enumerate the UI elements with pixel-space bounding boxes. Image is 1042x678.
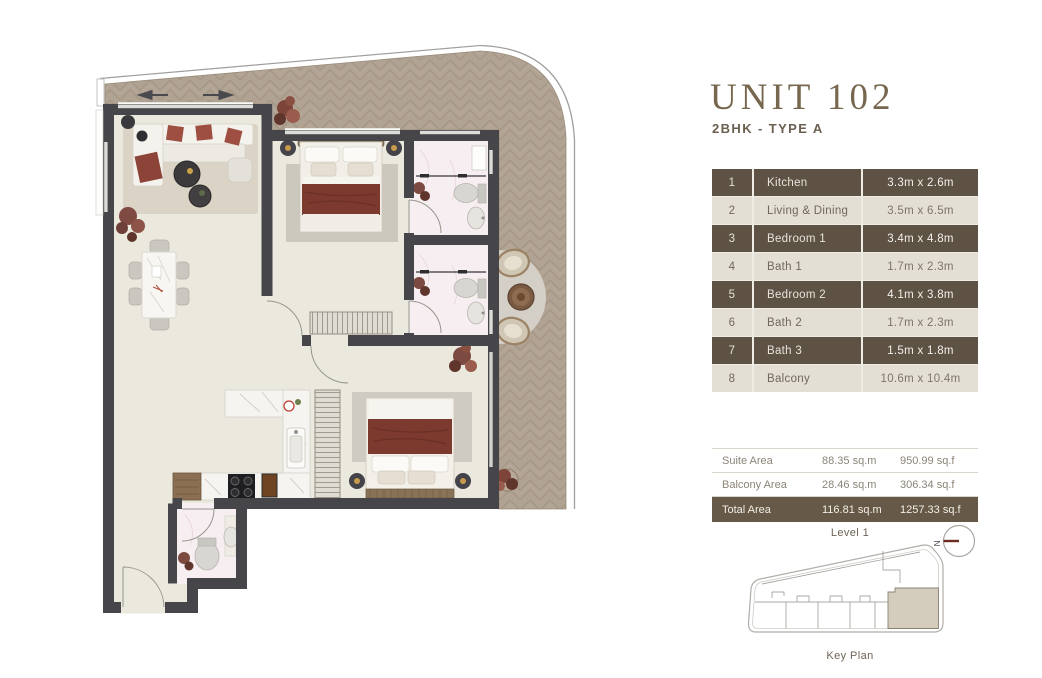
table-row: 4 Bath 1 1.7m x 2.3m xyxy=(712,253,978,280)
room-number: 1 xyxy=(712,169,752,196)
key-plan xyxy=(742,540,958,645)
kitchen-decor-plate xyxy=(284,401,294,411)
table-row: 7 Bath 3 1.5m x 1.8m xyxy=(712,337,978,364)
area-summary-table: Suite Area 88.35 sq.m 950.99 sq.f Balcon… xyxy=(712,448,978,522)
bed-2 xyxy=(366,398,454,498)
room-number: 5 xyxy=(712,281,752,308)
table-row: 1 Kitchen 3.3m x 2.6m xyxy=(712,169,978,196)
table-row-total: Total Area 116.81 sq.m 1257.33 sq.f xyxy=(712,496,978,522)
stove xyxy=(228,474,255,498)
compass-icon: N xyxy=(928,522,980,564)
area-sqf: 1257.33 sq.f xyxy=(900,504,968,516)
kitchen-wood-cabinet xyxy=(173,473,201,500)
room-dimensions-table: 1 Kitchen 3.3m x 2.6m 2 Living & Dining … xyxy=(712,169,978,392)
kitchen-sink xyxy=(287,428,305,468)
bath3-sink xyxy=(224,527,238,547)
room-dimensions: 4.1m x 3.8m xyxy=(863,281,978,308)
room-dimensions: 3.3m x 2.6m xyxy=(863,169,978,196)
side-table xyxy=(228,158,252,182)
room-number: 4 xyxy=(712,253,752,280)
room-name: Bath 1 xyxy=(754,253,861,280)
room-number: 6 xyxy=(712,309,752,336)
area-label: Total Area xyxy=(722,504,822,516)
keyplan-level-label: Level 1 xyxy=(742,527,958,539)
entry-door-gap xyxy=(121,602,165,614)
unit-type-subtitle: 2BHK - TYPE A xyxy=(712,121,824,136)
room-name: Balcony xyxy=(754,365,861,392)
floor-lamp-shade xyxy=(137,131,148,142)
kitchen-decor-herb xyxy=(295,399,301,405)
bath1-shelf xyxy=(472,146,486,170)
table-row: 2 Living & Dining 3.5m x 6.5m xyxy=(712,197,978,224)
area-label: Suite Area xyxy=(722,455,822,467)
balcony-end-post xyxy=(97,79,104,106)
room-number: 3 xyxy=(712,225,752,252)
room-dimensions: 3.5m x 6.5m xyxy=(863,197,978,224)
room-name: Kitchen xyxy=(754,169,861,196)
room-dimensions: 1.7m x 2.3m xyxy=(863,253,978,280)
area-sqm: 116.81 sq.m xyxy=(822,504,900,516)
room-name: Bath 2 xyxy=(754,309,861,336)
room-name: Bedroom 2 xyxy=(754,281,861,308)
room-dimensions: 10.6m x 10.4m xyxy=(863,365,978,392)
floorplan-page: UNIT 102 2BHK - TYPE A 1 Kitchen 3.3m x … xyxy=(0,0,1042,678)
bed-1 xyxy=(298,136,384,232)
toilet xyxy=(454,279,478,298)
floor-plan xyxy=(70,40,580,630)
room-name: Bedroom 1 xyxy=(754,225,861,252)
keyplan-highlighted-unit xyxy=(888,588,939,629)
table-row: Suite Area 88.35 sq.m 950.99 sq.f xyxy=(712,448,978,472)
table-row: 8 Balcony 10.6m x 10.4m xyxy=(712,365,978,392)
bedroom2-wardrobe xyxy=(315,390,340,498)
room-name: Bath 3 xyxy=(754,337,861,364)
room-dimensions: 1.5m x 1.8m xyxy=(863,337,978,364)
room-number: 2 xyxy=(712,197,752,224)
toilet xyxy=(454,184,478,203)
table-row: Balcony Area 28.46 sq.m 306.34 sq.f xyxy=(712,472,978,496)
area-sqf: 306.34 sq.f xyxy=(900,479,968,491)
compass-north-letter: N xyxy=(932,540,942,546)
area-sqf: 950.99 sq.f xyxy=(900,455,968,467)
page-title: UNIT 102 xyxy=(710,76,894,119)
area-sqm: 28.46 sq.m xyxy=(822,479,900,491)
kitchen-decor-tray xyxy=(262,474,277,497)
table-row: 6 Bath 2 1.7m x 2.3m xyxy=(712,309,978,336)
keyplan-caption: Key Plan xyxy=(742,650,958,662)
room-name: Living & Dining xyxy=(754,197,861,224)
room-number: 7 xyxy=(712,337,752,364)
room-dimensions: 3.4m x 4.8m xyxy=(863,225,978,252)
floor-lamp xyxy=(121,115,135,129)
area-sqm: 88.35 sq.m xyxy=(822,455,900,467)
room-dimensions: 1.7m x 2.3m xyxy=(863,309,978,336)
area-label: Balcony Area xyxy=(722,479,822,491)
table-row: 5 Bedroom 2 4.1m x 3.8m xyxy=(712,281,978,308)
table-row: 3 Bedroom 1 3.4m x 4.8m xyxy=(712,225,978,252)
bedroom1-wardrobe xyxy=(310,312,392,334)
room-number: 8 xyxy=(712,365,752,392)
